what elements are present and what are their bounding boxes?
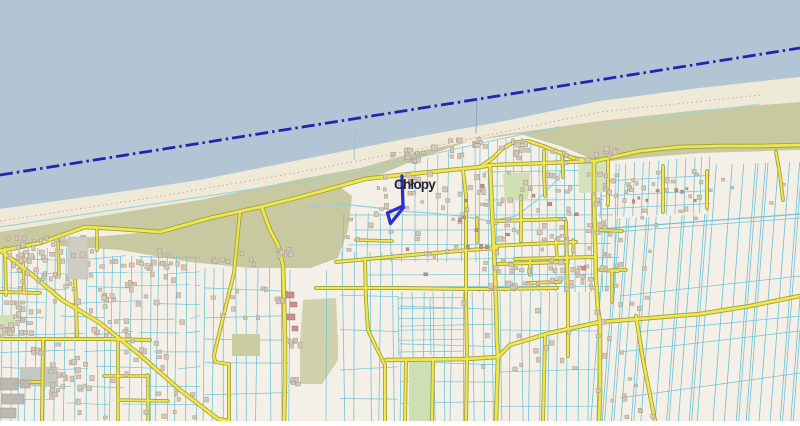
svg-text:Chłopy: Chłopy xyxy=(394,177,436,192)
